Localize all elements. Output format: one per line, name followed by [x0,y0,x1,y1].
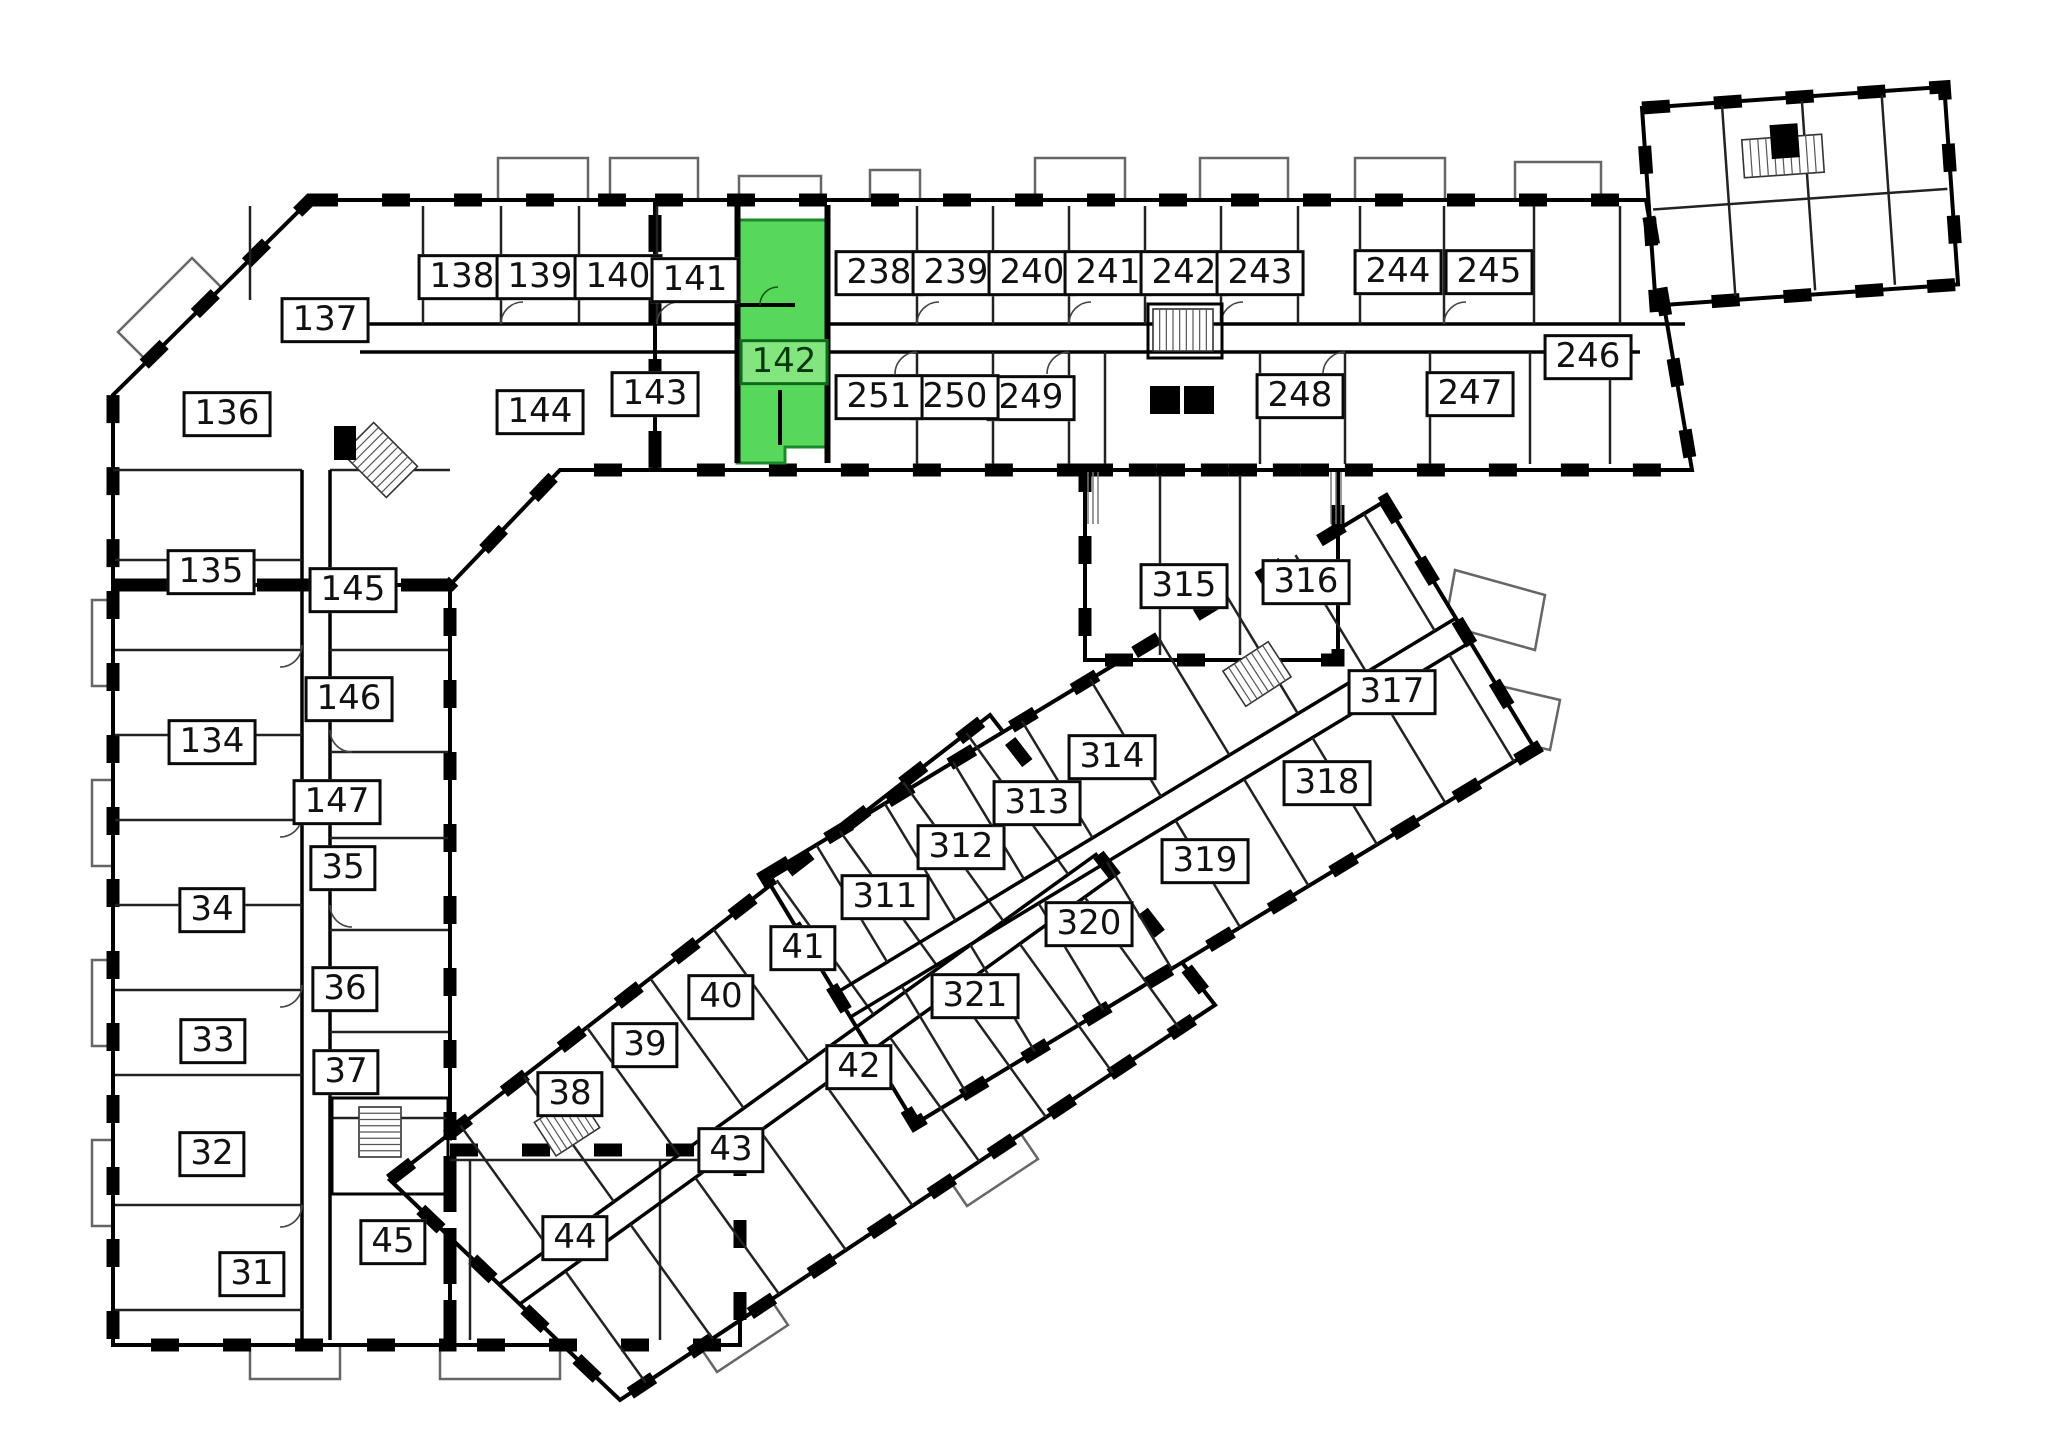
room-label-312[interactable]: 312 [917,824,1006,870]
room-label-321[interactable]: 321 [931,973,1020,1019]
room-number: 136 [195,393,260,433]
room-label-315[interactable]: 315 [1140,563,1229,609]
room-number: 44 [553,1217,596,1257]
room-label-44[interactable]: 44 [541,1215,608,1261]
room-number: 41 [781,927,824,967]
room-label-41[interactable]: 41 [769,925,836,971]
room-number: 147 [305,781,370,821]
room-number: 321 [943,975,1008,1015]
room-number: 33 [191,1020,234,1060]
room-number: 38 [548,1073,591,1113]
room-number: 313 [1005,782,1070,822]
room-number: 243 [1228,252,1293,292]
room-number: 251 [847,376,912,416]
room-number: 43 [709,1129,752,1169]
room-label-39[interactable]: 39 [611,1022,678,1068]
room-label-142[interactable]: 142 [740,339,829,385]
room-number: 139 [508,256,573,296]
room-number: 238 [847,252,912,292]
room-label-33[interactable]: 33 [179,1018,246,1064]
room-label-248[interactable]: 248 [1256,373,1345,419]
room-number: 135 [179,551,244,591]
room-number: 312 [929,826,994,866]
room-label-143[interactable]: 143 [611,371,700,417]
room-label-42[interactable]: 42 [825,1044,892,1090]
room-label-137[interactable]: 137 [281,297,370,343]
room-number: 39 [623,1024,666,1064]
room-label-244[interactable]: 244 [1354,249,1443,295]
room-label-251[interactable]: 251 [835,374,924,420]
room-number: 141 [663,259,728,299]
room-number: 315 [1152,565,1217,605]
room-label-141[interactable]: 141 [651,257,740,303]
room-label-318[interactable]: 318 [1283,760,1372,806]
room-number: 317 [1360,671,1425,711]
room-number: 36 [323,968,366,1008]
room-labels: 1381391401411422382392402412422432442452… [0,0,2048,1447]
room-number: 249 [999,377,1064,417]
room-label-37[interactable]: 37 [312,1049,379,1095]
room-number: 316 [1274,561,1339,601]
room-label-134[interactable]: 134 [168,719,257,765]
room-label-43[interactable]: 43 [697,1127,764,1173]
room-number: 42 [837,1046,880,1086]
room-number: 246 [1556,336,1621,376]
room-number: 250 [923,376,988,416]
room-number: 34 [190,889,233,929]
room-label-34[interactable]: 34 [178,887,245,933]
room-label-35[interactable]: 35 [309,845,376,891]
room-number: 318 [1295,762,1360,802]
room-label-317[interactable]: 317 [1348,669,1437,715]
room-label-45[interactable]: 45 [359,1219,426,1265]
room-label-314[interactable]: 314 [1068,734,1157,780]
room-number: 143 [623,373,688,413]
room-number: 140 [586,256,651,296]
room-number: 248 [1268,375,1333,415]
room-number: 319 [1173,840,1238,880]
room-number: 142 [752,341,817,381]
room-number: 138 [430,256,495,296]
room-label-319[interactable]: 319 [1161,838,1250,884]
room-number: 137 [293,299,358,339]
room-number: 247 [1438,373,1503,413]
room-label-138[interactable]: 138 [418,254,507,300]
floor-plan-canvas: 1381391401411422382392402412422432442452… [0,0,2048,1447]
room-number: 245 [1457,251,1522,291]
room-label-36[interactable]: 36 [311,966,378,1012]
room-label-250[interactable]: 250 [911,374,1000,420]
room-number: 239 [924,252,989,292]
room-number: 31 [230,1253,273,1293]
room-label-246[interactable]: 246 [1544,334,1633,380]
room-number: 32 [190,1133,233,1173]
room-label-38[interactable]: 38 [536,1071,603,1117]
room-number: 134 [180,721,245,761]
room-label-146[interactable]: 146 [305,676,394,722]
room-label-145[interactable]: 145 [309,567,398,613]
room-label-31[interactable]: 31 [218,1251,285,1297]
room-label-313[interactable]: 313 [993,780,1082,826]
room-label-140[interactable]: 140 [574,254,663,300]
room-number: 242 [1152,252,1217,292]
room-label-320[interactable]: 320 [1045,901,1134,947]
room-label-238[interactable]: 238 [835,250,924,296]
room-number: 146 [317,678,382,718]
room-label-139[interactable]: 139 [496,254,585,300]
room-label-247[interactable]: 247 [1426,371,1515,417]
room-label-316[interactable]: 316 [1262,559,1351,605]
room-label-243[interactable]: 243 [1216,250,1305,296]
room-number: 320 [1057,903,1122,943]
room-label-136[interactable]: 136 [183,391,272,437]
room-number: 311 [853,876,918,916]
room-number: 314 [1080,736,1145,776]
room-label-249[interactable]: 249 [987,375,1076,421]
room-label-147[interactable]: 147 [293,779,382,825]
room-number: 241 [1076,252,1141,292]
room-number: 45 [371,1221,414,1261]
room-number: 145 [321,569,386,609]
room-label-144[interactable]: 144 [496,389,585,435]
room-label-40[interactable]: 40 [687,974,754,1020]
room-label-32[interactable]: 32 [178,1131,245,1177]
room-label-245[interactable]: 245 [1445,249,1534,295]
room-label-135[interactable]: 135 [167,549,256,595]
room-number: 37 [324,1051,367,1091]
room-number: 244 [1366,251,1431,291]
room-number: 40 [699,976,742,1016]
room-number: 35 [321,847,364,887]
room-number: 240 [1000,252,1065,292]
room-label-311[interactable]: 311 [841,874,930,920]
room-number: 144 [508,391,573,431]
